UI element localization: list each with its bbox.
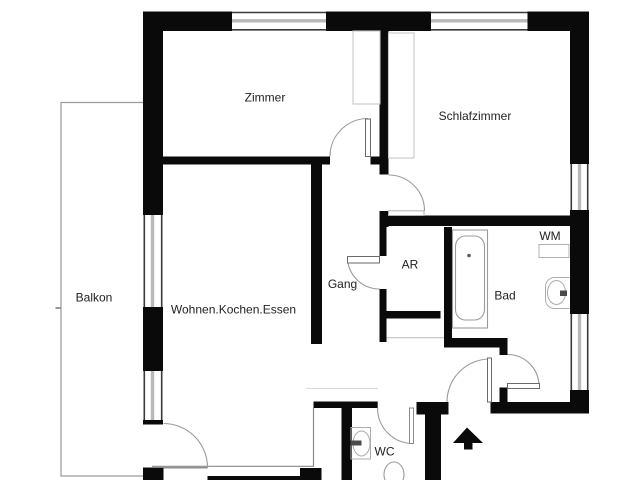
svg-text:Wohnen.Kochen.Essen: Wohnen.Kochen.Essen <box>171 303 296 317</box>
svg-text:Gang: Gang <box>328 277 357 291</box>
svg-text:Bad: Bad <box>494 289 515 303</box>
svg-text:Schlafzimmer: Schlafzimmer <box>439 109 512 123</box>
svg-text:Balkon: Balkon <box>76 291 113 305</box>
svg-text:Zimmer: Zimmer <box>245 91 286 105</box>
svg-text:WC: WC <box>375 445 395 459</box>
svg-text:WM: WM <box>539 229 560 243</box>
svg-text:AR: AR <box>402 258 419 272</box>
